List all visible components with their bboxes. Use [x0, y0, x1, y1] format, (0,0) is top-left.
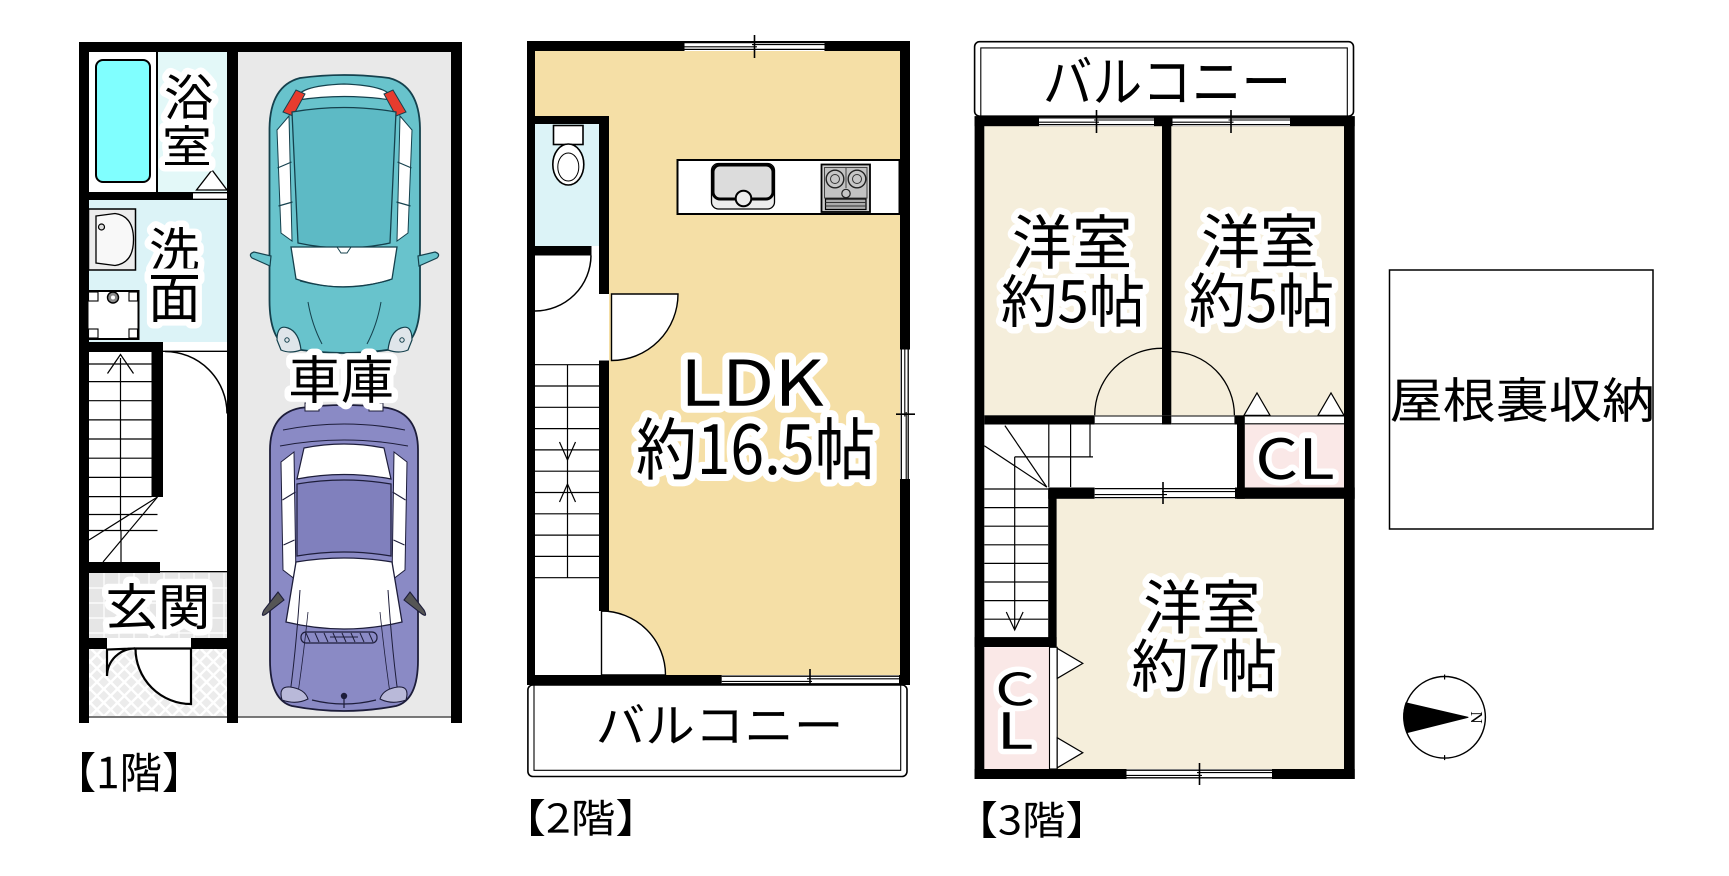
- svg-text:N: N: [1467, 711, 1486, 723]
